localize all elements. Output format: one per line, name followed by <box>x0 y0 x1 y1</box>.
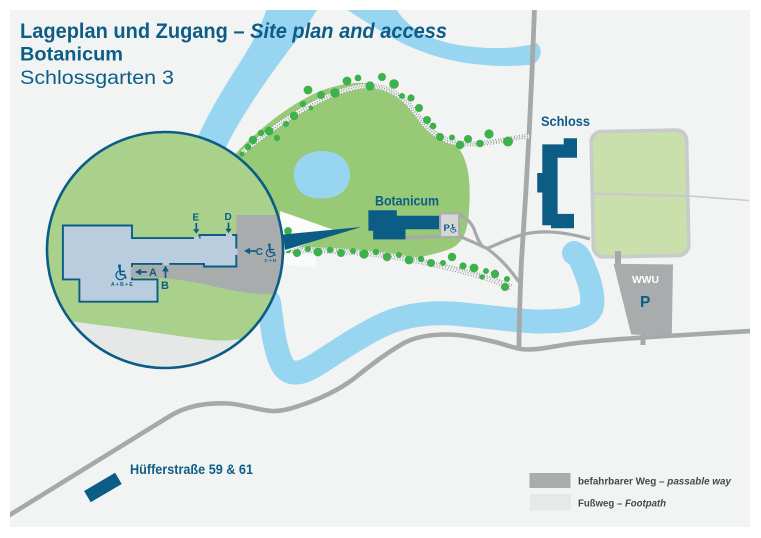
svg-text:A: A <box>149 267 157 279</box>
svg-text:C: C <box>256 247 263 258</box>
svg-text:Lageplan und Zugang – Site pla: Lageplan und Zugang – Site plan and acce… <box>20 19 447 43</box>
svg-text:B: B <box>161 280 169 292</box>
svg-text:WWU: WWU <box>632 274 659 286</box>
svg-text:E: E <box>193 213 200 224</box>
svg-text:C + D: C + D <box>265 258 278 263</box>
svg-text:A + B + E: A + B + E <box>111 282 133 288</box>
svg-text:P: P <box>444 223 451 234</box>
svg-text:Schloss: Schloss <box>541 114 590 129</box>
svg-text:Schlossgarten 3: Schlossgarten 3 <box>20 67 174 89</box>
svg-text:Botanicum: Botanicum <box>20 44 123 66</box>
svg-text:Botanicum: Botanicum <box>375 193 439 209</box>
svg-text:P: P <box>640 294 650 311</box>
svg-text:D: D <box>225 212 232 223</box>
svg-text:Fußweg – Footpath: Fußweg – Footpath <box>578 498 666 510</box>
svg-text:befahrbarer Weg – passable way: befahrbarer Weg – passable way <box>578 476 732 488</box>
svg-text:Hüfferstraße 59 & 61: Hüfferstraße 59 & 61 <box>130 462 253 477</box>
